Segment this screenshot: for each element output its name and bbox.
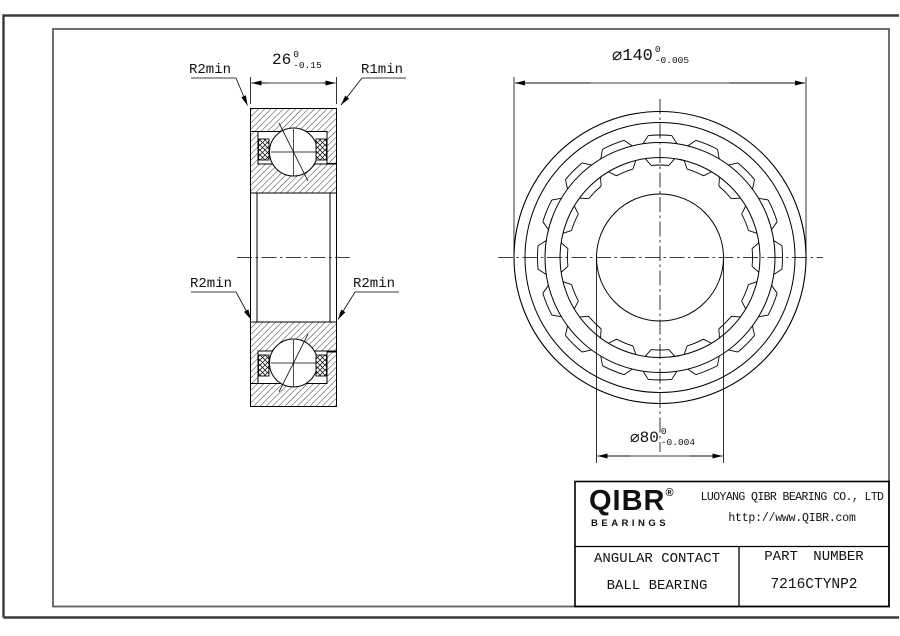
width-value: 26 — [272, 52, 291, 68]
company-name: LUOYANG QIBR BEARING CO., LTD — [694, 492, 890, 504]
width-dimension — [251, 77, 337, 104]
leader-r2min-mid-left — [191, 292, 251, 320]
cage-top-right — [316, 139, 327, 160]
od-value: 140 — [622, 47, 653, 66]
bore-value: 80 — [640, 429, 659, 447]
label-r2min-mid-left: R2min — [190, 277, 232, 291]
od-tol-lower: -0.005 — [655, 56, 689, 67]
sheet-border — [4, 16, 900, 618]
diameter-symbol: ⌀ — [612, 45, 622, 65]
diameter-symbol: ⌀ — [630, 427, 640, 446]
label-r2min-mid-right: R2min — [353, 277, 395, 291]
width-tol-lower: -0.15 — [293, 61, 322, 72]
bore-tol-lower: -0.004 — [661, 438, 695, 449]
logo-text: QIBR — [589, 485, 666, 517]
cage-bottom-left — [259, 355, 270, 376]
product-type-line2: BALL BEARING — [575, 579, 739, 593]
cage-top-left — [259, 139, 270, 160]
label-r2min-top-left: R2min — [189, 63, 231, 77]
label-r1min-top-right: R1min — [361, 63, 403, 77]
part-number-label: PART NUMBER — [739, 550, 889, 564]
company-website[interactable]: http://www.QIBR.com — [694, 513, 890, 525]
drawing-linework — [0, 0, 900, 636]
leader-r2min-mid-right — [338, 292, 399, 320]
cage-bottom-right — [316, 355, 327, 376]
product-type-line1: ANGULAR CONTACT — [575, 552, 739, 566]
cross-section-view — [191, 77, 406, 407]
part-number-value: 7216CTYNP2 — [739, 578, 889, 593]
registered-mark-icon: ® — [666, 487, 674, 499]
logo-subtext: BEARINGS — [591, 519, 674, 529]
front-view — [498, 77, 823, 463]
drawing-sheet: R2min R1min R2min R2min 26 0 -0.15 ⌀140 … — [0, 0, 900, 636]
leader-r1min-top-right — [341, 78, 406, 105]
bore-dimension-text: ⌀80 0 -0.004 — [630, 429, 695, 449]
company-logo: QIBR® BEARINGS — [589, 487, 674, 529]
width-dimension-text: 26 0 -0.15 — [272, 52, 322, 72]
leader-r2min-top-left — [191, 78, 248, 106]
od-dimension-text: ⌀140 0 -0.005 — [612, 47, 689, 67]
